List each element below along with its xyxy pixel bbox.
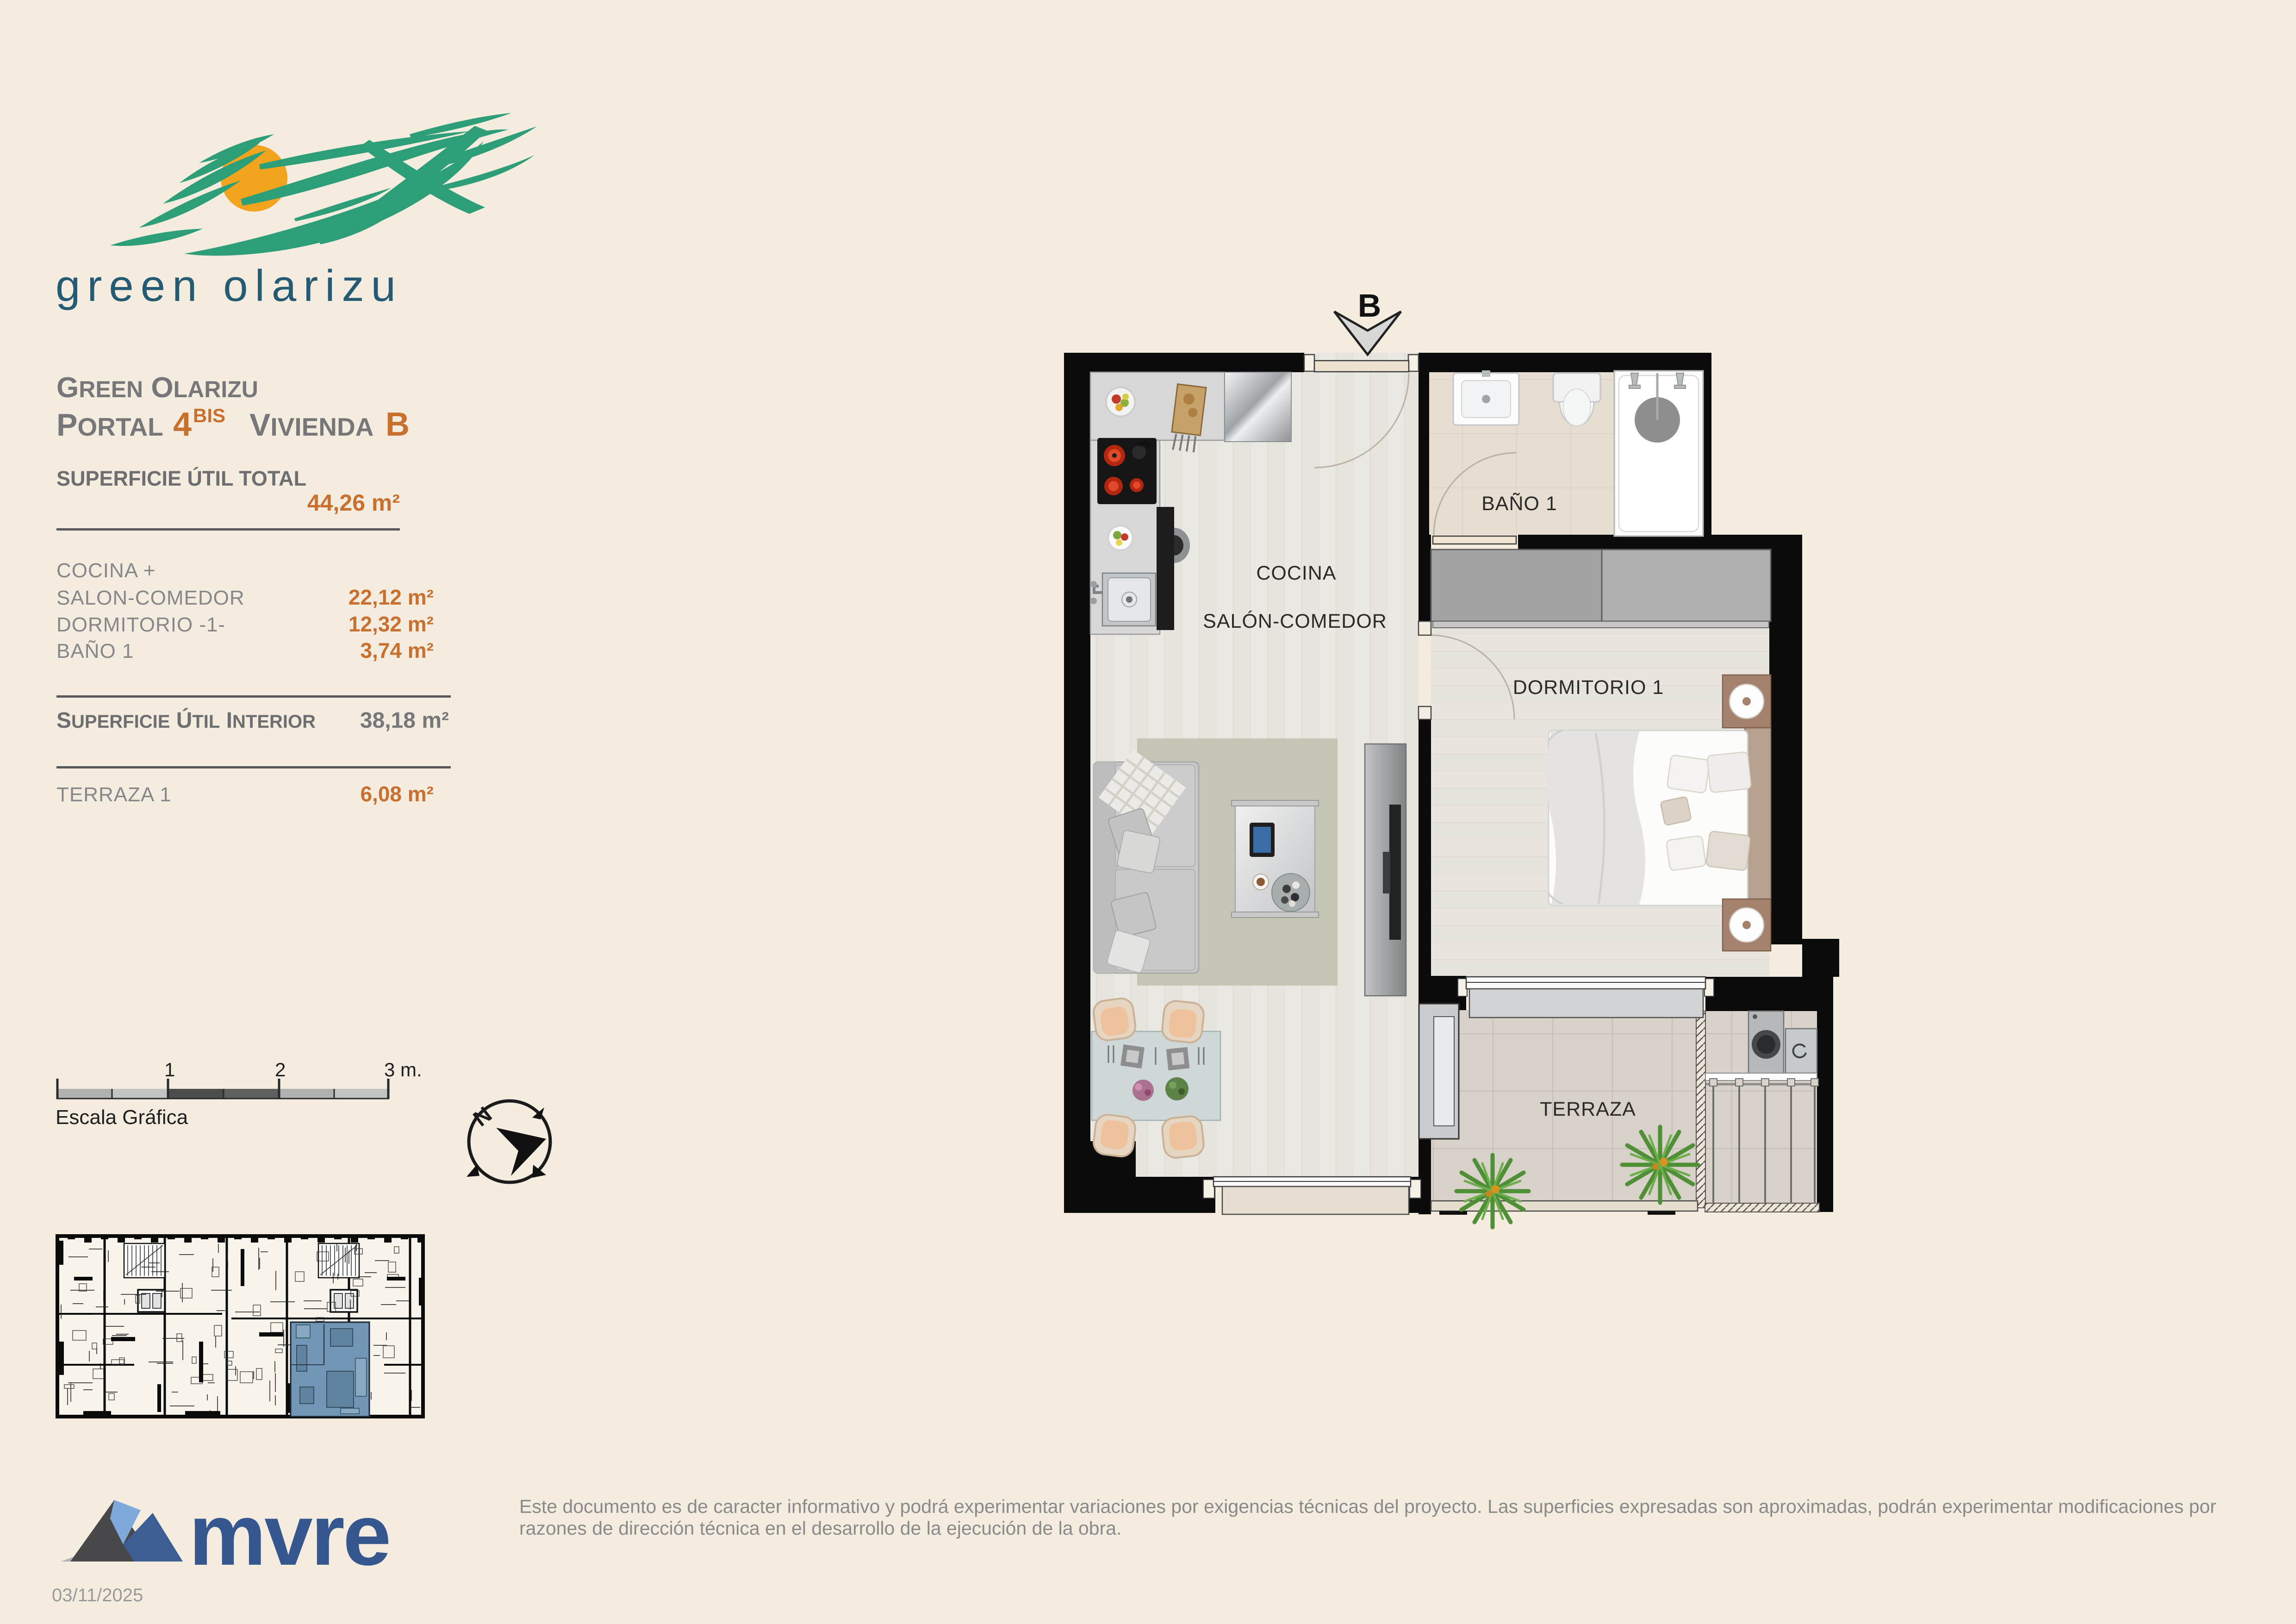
svg-text:green olarizu: green olarizu <box>56 261 403 311</box>
svg-text:Escala Gráfica: Escala Gráfica <box>56 1106 188 1129</box>
svg-text:SALON-COMEDOR: SALON-COMEDOR <box>56 587 245 609</box>
svg-text:12,32 m²: 12,32 m² <box>348 612 434 636</box>
svg-text:4: 4 <box>173 406 192 443</box>
svg-text:TERRAZA: TERRAZA <box>1540 1098 1636 1120</box>
svg-text:BIS: BIS <box>193 405 225 426</box>
svg-text:DORMITORIO 1: DORMITORIO 1 <box>1513 676 1664 699</box>
svg-text:1: 1 <box>164 1059 175 1081</box>
svg-text:2: 2 <box>275 1059 286 1081</box>
svg-text:SUPERFICIE ÚTIL TOTAL: SUPERFICIE ÚTIL TOTAL <box>56 467 306 490</box>
svg-text:GREEN OLARIZU: GREEN OLARIZU <box>56 372 258 404</box>
svg-text:BAÑO 1: BAÑO 1 <box>1481 493 1557 515</box>
svg-text:3 m.: 3 m. <box>384 1059 422 1081</box>
svg-text:COCINA: COCINA <box>1256 562 1336 584</box>
svg-text:B: B <box>1358 287 1381 324</box>
svg-text:TERRAZA 1: TERRAZA 1 <box>56 783 172 806</box>
svg-text:VIVIENDA: VIVIENDA <box>249 407 373 443</box>
svg-text:38,18 m²: 38,18 m² <box>360 708 449 733</box>
svg-text:Este documento es de caracter: Este documento es de caracter informativ… <box>519 1496 2216 1517</box>
svg-text:03/11/2025: 03/11/2025 <box>52 1585 143 1605</box>
svg-text:COCINA +: COCINA + <box>56 559 156 582</box>
svg-text:BAÑO 1: BAÑO 1 <box>56 639 134 662</box>
svg-text:3,74 m²: 3,74 m² <box>360 638 434 662</box>
svg-text:6,08 m²: 6,08 m² <box>360 782 434 806</box>
svg-text:razones de dirección técnica e: razones de dirección técnica en el desar… <box>519 1518 1121 1539</box>
svg-text:mvre: mvre <box>189 1486 389 1583</box>
svg-text:SUPERFICIE ÚTIL INTERIOR: SUPERFICIE ÚTIL INTERIOR <box>56 707 316 733</box>
svg-text:SALÓN-COMEDOR: SALÓN-COMEDOR <box>1203 610 1387 632</box>
svg-text:PORTAL: PORTAL <box>56 407 163 443</box>
svg-text:22,12 m²: 22,12 m² <box>348 585 434 609</box>
svg-text:44,26 m²: 44,26 m² <box>307 490 400 516</box>
svg-text:DORMITORIO -1-: DORMITORIO -1- <box>56 613 225 636</box>
svg-text:B: B <box>386 406 410 443</box>
